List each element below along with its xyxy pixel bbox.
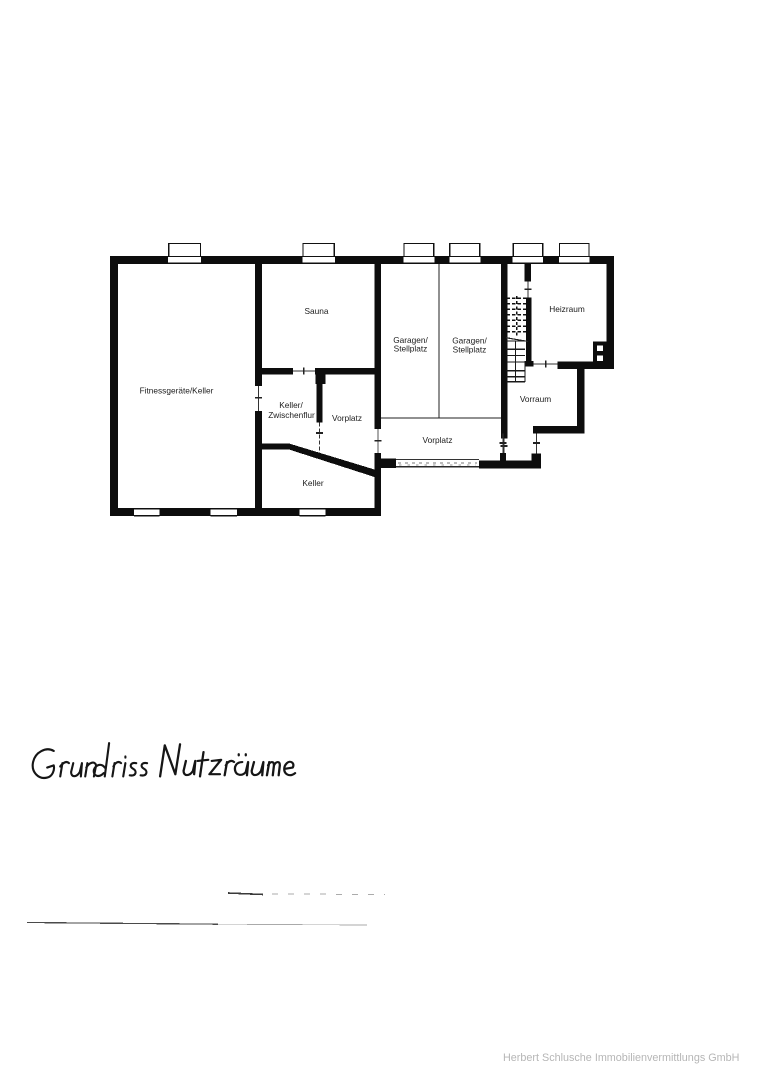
svg-text:Zwischenflur: Zwischenflur <box>268 410 315 420</box>
svg-text:Stellplatz: Stellplatz <box>394 344 428 354</box>
svg-text:Vorplatz: Vorplatz <box>332 413 362 423</box>
svg-text:Fitnessgeräte/Keller: Fitnessgeräte/Keller <box>140 386 214 396</box>
svg-text:Sauna: Sauna <box>305 306 329 316</box>
svg-text:Keller/: Keller/ <box>279 400 303 410</box>
svg-text:Heizraum: Heizraum <box>549 304 585 314</box>
svg-text:Stellplatz: Stellplatz <box>453 345 487 355</box>
svg-text:Vorraum: Vorraum <box>520 394 551 404</box>
svg-text:Herbert Schlusche Immobilienve: Herbert Schlusche Immobilienvermittlungs… <box>503 1052 739 1064</box>
svg-text:Vorplatz: Vorplatz <box>423 435 453 445</box>
svg-text:Keller: Keller <box>302 478 323 488</box>
